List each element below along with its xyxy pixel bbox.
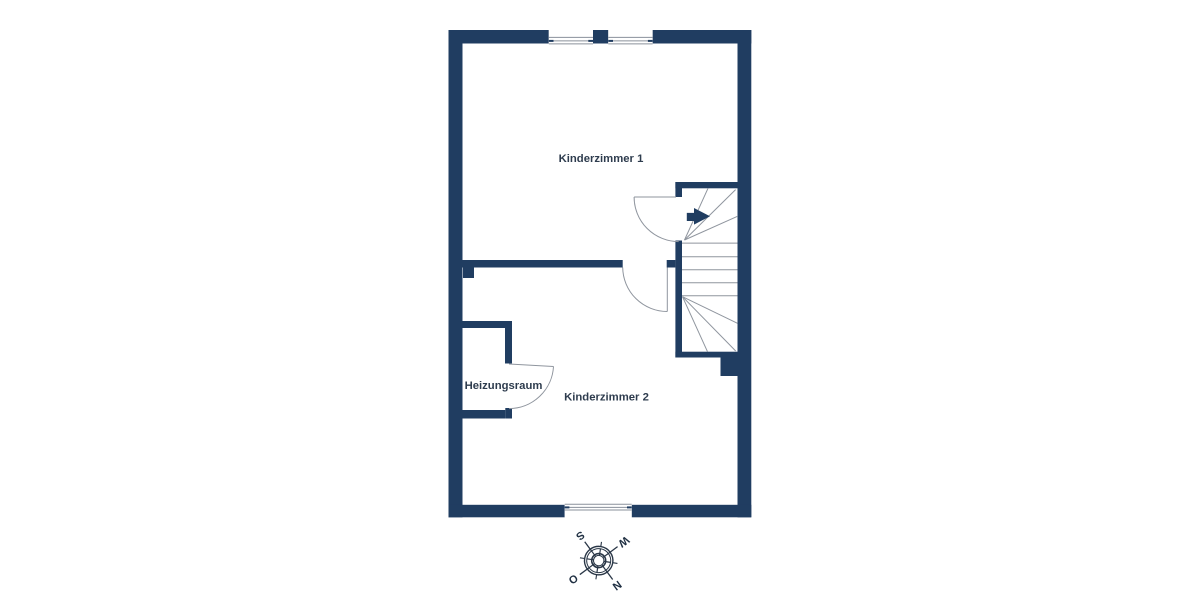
svg-text:Heizungsraum: Heizungsraum [465, 380, 543, 392]
svg-text:Kinderzimmer 2: Kinderzimmer 2 [564, 392, 649, 404]
svg-text:Kinderzimmer 1: Kinderzimmer 1 [559, 153, 644, 165]
